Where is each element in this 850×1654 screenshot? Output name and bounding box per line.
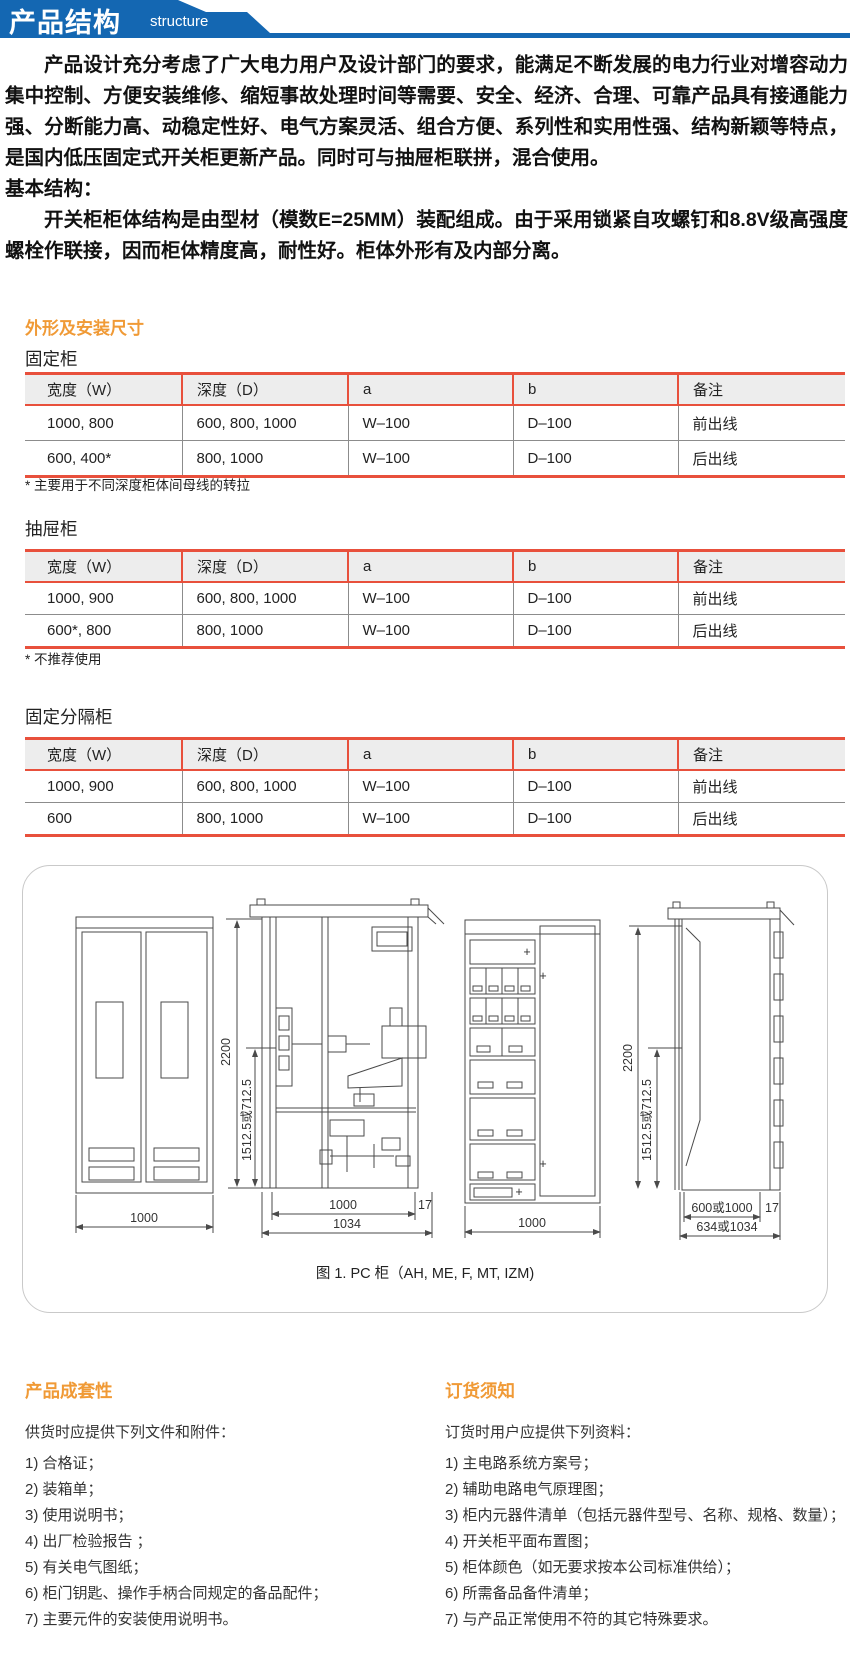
- completeness-section: 产品成套性 供货时应提供下列文件和附件： 1) 合格证； 2) 装箱单； 3) …: [25, 1378, 430, 1633]
- column-header: b: [513, 551, 678, 583]
- list-item: 5) 有关电气图纸；: [25, 1555, 430, 1581]
- table-cell: 后出线: [678, 441, 845, 477]
- plus-mark: +: [539, 969, 546, 983]
- table-cell: 前出线: [678, 582, 845, 615]
- table-header-row: 宽度（W） 深度（D） a b 备注: [25, 551, 845, 583]
- list-item: 2) 装箱单；: [25, 1477, 430, 1503]
- intro-paragraph-2: 开关柜柜体结构是由型材（模数E=25MM）装配组成。由于采用锁紧自攻螺钉和8.8…: [5, 205, 848, 267]
- dim-label-side-outer-width: 1034: [333, 1217, 361, 1231]
- dim-label-side2-inner-width: 600或1000: [691, 1201, 752, 1215]
- ordering-lead: 订货时用户应提供下列资料：: [445, 1421, 850, 1442]
- figure-caption: 图 1. PC 柜（AH, ME, F, MT, IZM): [22, 1262, 828, 1283]
- table-cell: 600*, 800: [25, 615, 182, 648]
- table-cell: W–100: [348, 803, 513, 836]
- drawing-shapes: [76, 899, 794, 1240]
- drawer-cabinet-table: 宽度（W） 深度（D） a b 备注 1000, 900 600, 800, 1…: [25, 549, 845, 649]
- column-header: 深度（D）: [182, 739, 348, 771]
- column-header: 深度（D）: [182, 374, 348, 406]
- list-item: 4) 开关柜平面布置图；: [445, 1529, 850, 1555]
- section-title-ordering: 订货须知: [445, 1378, 850, 1403]
- table-cell: 1000, 800: [25, 405, 182, 441]
- table-cell: 600: [25, 803, 182, 836]
- table-cell: W–100: [348, 615, 513, 648]
- column-header: a: [348, 551, 513, 583]
- table-cell: 800, 1000: [182, 441, 348, 477]
- table-cell: 600, 800, 1000: [182, 770, 348, 803]
- table-cell: 1000, 900: [25, 582, 182, 615]
- column-header: a: [348, 739, 513, 771]
- table-row: 600*, 800 800, 1000 W–100 D–100 后出线: [25, 615, 845, 648]
- dim-label-side-gap: 17: [418, 1198, 432, 1212]
- list-item: 3) 柜内元器件清单（包括元器件型号、名称、规格、数量）；: [445, 1503, 850, 1529]
- completeness-lead: 供货时应提供下列文件和附件：: [25, 1421, 430, 1442]
- table-cell: W–100: [348, 441, 513, 477]
- table-cell: 前出线: [678, 770, 845, 803]
- table-row: 1000, 900 600, 800, 1000 W–100 D–100 前出线: [25, 770, 845, 803]
- table-cell: 800, 1000: [182, 803, 348, 836]
- column-header: a: [348, 374, 513, 406]
- dim-label-front-width: 1000: [130, 1211, 158, 1225]
- table-title-fixed-cabinet: 固定柜: [25, 346, 78, 371]
- column-header: 备注: [678, 374, 845, 406]
- column-header: 深度（D）: [182, 551, 348, 583]
- table-cell: W–100: [348, 770, 513, 803]
- dim-label-side-height: 2200: [219, 1038, 233, 1066]
- table-cell: D–100: [513, 405, 678, 441]
- table-cell: D–100: [513, 582, 678, 615]
- dim-label-side-inner-width: 1000: [329, 1198, 357, 1212]
- plus-mark: +: [515, 1185, 522, 1199]
- fixed-partition-cabinet-table: 宽度（W） 深度（D） a b 备注 1000, 900 600, 800, 1…: [25, 737, 845, 837]
- page-subtitle: structure: [150, 13, 208, 30]
- plus-mark: +: [523, 945, 530, 959]
- column-header: b: [513, 739, 678, 771]
- page-title: 产品结构: [9, 1, 121, 40]
- column-header: 宽度（W）: [25, 739, 182, 771]
- dim-label-side2-height: 2200: [621, 1044, 635, 1072]
- table-row: 600 800, 1000 W–100 D–100 后出线: [25, 803, 845, 836]
- dim-label-drawer-front-width: 1000: [518, 1216, 546, 1230]
- table-cell: 600, 400*: [25, 441, 182, 477]
- intro-text: 产品设计充分考虑了广大电力用户及设计部门的要求，能满足不断发展的电力行业对增容动…: [5, 50, 848, 267]
- table-footnote: * 不推荐使用: [25, 648, 102, 668]
- column-header: b: [513, 374, 678, 406]
- intro-paragraph-1: 产品设计充分考虑了广大电力用户及设计部门的要求，能满足不断发展的电力行业对增容动…: [5, 50, 848, 174]
- list-item: 7) 主要元件的安装使用说明书。: [25, 1607, 430, 1633]
- list-item: 7) 与产品正常使用不符的其它特殊要求。: [445, 1607, 850, 1633]
- dim-label-side2-partial-height: 1512.5或712.5: [640, 1079, 654, 1161]
- list-item: 3) 使用说明书；: [25, 1503, 430, 1529]
- product-structure-page: 产品结构 structure 产品设计充分考虑了广大电力用户及设计部门的要求，能…: [0, 0, 850, 1654]
- list-item: 6) 柜门钥匙、操作手柄合同规定的备品配件；: [25, 1581, 430, 1607]
- table-cell: 后出线: [678, 803, 845, 836]
- ordering-section: 订货须知 订货时用户应提供下列资料： 1) 主电路系统方案号； 2) 辅助电路电…: [445, 1378, 850, 1633]
- table-cell: D–100: [513, 803, 678, 836]
- fixed-cabinet-table: 宽度（W） 深度（D） a b 备注 1000, 800 600, 800, 1…: [25, 372, 845, 478]
- dim-label-side2-gap: 17: [765, 1201, 779, 1215]
- table-cell: 800, 1000: [182, 615, 348, 648]
- table-cell: D–100: [513, 441, 678, 477]
- column-header: 备注: [678, 551, 845, 583]
- dim-label-side2-outer-width: 634或1034: [696, 1220, 757, 1234]
- column-header: 宽度（W）: [25, 374, 182, 406]
- plus-mark: +: [539, 1157, 546, 1171]
- table-header-row: 宽度（W） 深度（D） a b 备注: [25, 374, 845, 406]
- cabinet-drawings: 1000 2200 1512.5或712.5 1000 17 1034 + + …: [30, 880, 820, 1280]
- list-item: 2) 辅助电路电气原理图；: [445, 1477, 850, 1503]
- table-cell: 600, 800, 1000: [182, 582, 348, 615]
- table-cell: 后出线: [678, 615, 845, 648]
- list-item: 1) 主电路系统方案号；: [445, 1451, 850, 1477]
- table-row: 1000, 800 600, 800, 1000 W–100 D–100 前出线: [25, 405, 845, 441]
- table-cell: D–100: [513, 615, 678, 648]
- basic-structure-label: 基本结构：: [5, 174, 848, 205]
- list-item: 4) 出厂检验报告 ；: [25, 1529, 430, 1555]
- table-row: 1000, 900 600, 800, 1000 W–100 D–100 前出线: [25, 582, 845, 615]
- table-cell: 600, 800, 1000: [182, 405, 348, 441]
- table-title-drawer-cabinet: 抽屉柜: [25, 516, 78, 541]
- table-header-row: 宽度（W） 深度（D） a b 备注: [25, 739, 845, 771]
- table-cell: W–100: [348, 405, 513, 441]
- column-header: 宽度（W）: [25, 551, 182, 583]
- list-item: 5) 柜体颜色（如无要求按本公司标准供给）；: [445, 1555, 850, 1581]
- table-footnote: * 主要用于不同深度柜体间母线的转拉: [25, 474, 250, 494]
- table-cell: 1000, 900: [25, 770, 182, 803]
- table-row: 600, 400* 800, 1000 W–100 D–100 后出线: [25, 441, 845, 477]
- section-title-dimensions: 外形及安装尺寸: [25, 314, 144, 339]
- list-item: 6) 所需备品备件清单；: [445, 1581, 850, 1607]
- table-cell: W–100: [348, 582, 513, 615]
- column-header: 备注: [678, 739, 845, 771]
- table-title-fixed-partition-cabinet: 固定分隔柜: [25, 704, 113, 729]
- table-cell: D–100: [513, 770, 678, 803]
- section-title-completeness: 产品成套性: [25, 1378, 430, 1403]
- table-cell: 前出线: [678, 405, 845, 441]
- list-item: 1) 合格证；: [25, 1451, 430, 1477]
- dim-label-side-partial-height: 1512.5或712.5: [240, 1079, 254, 1161]
- page-banner: 产品结构 structure: [0, 0, 850, 38]
